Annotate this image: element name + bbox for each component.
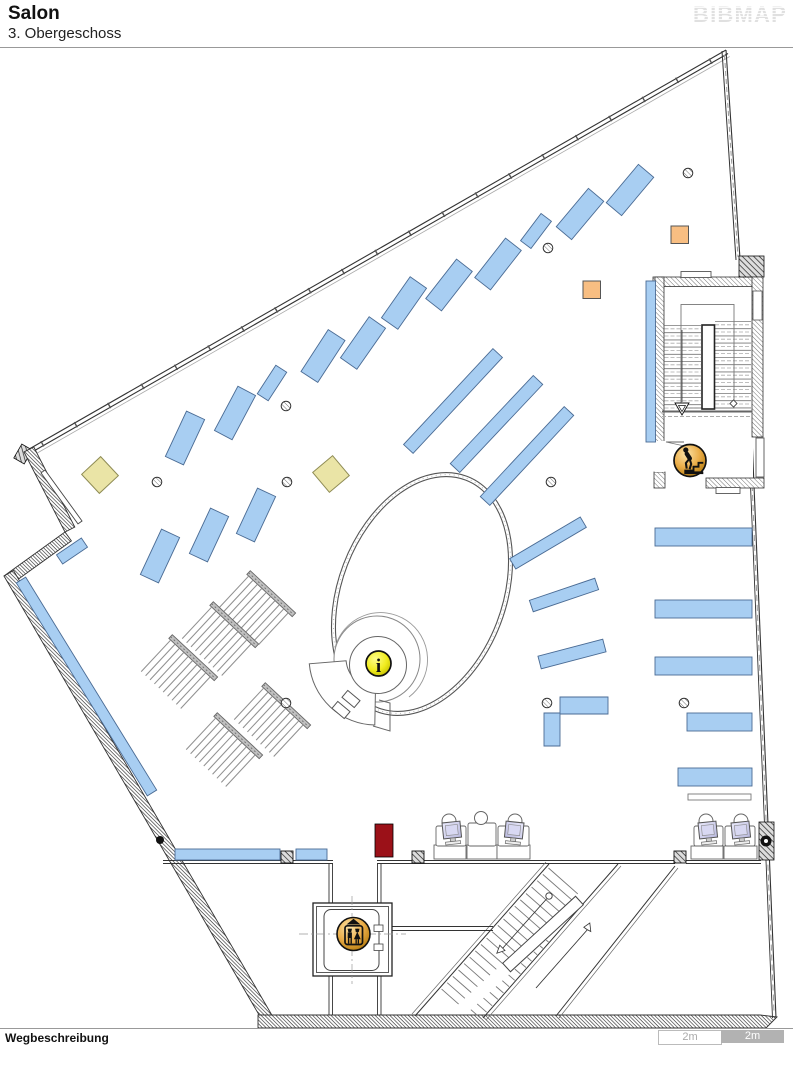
svg-text:i: i [376,656,381,677]
